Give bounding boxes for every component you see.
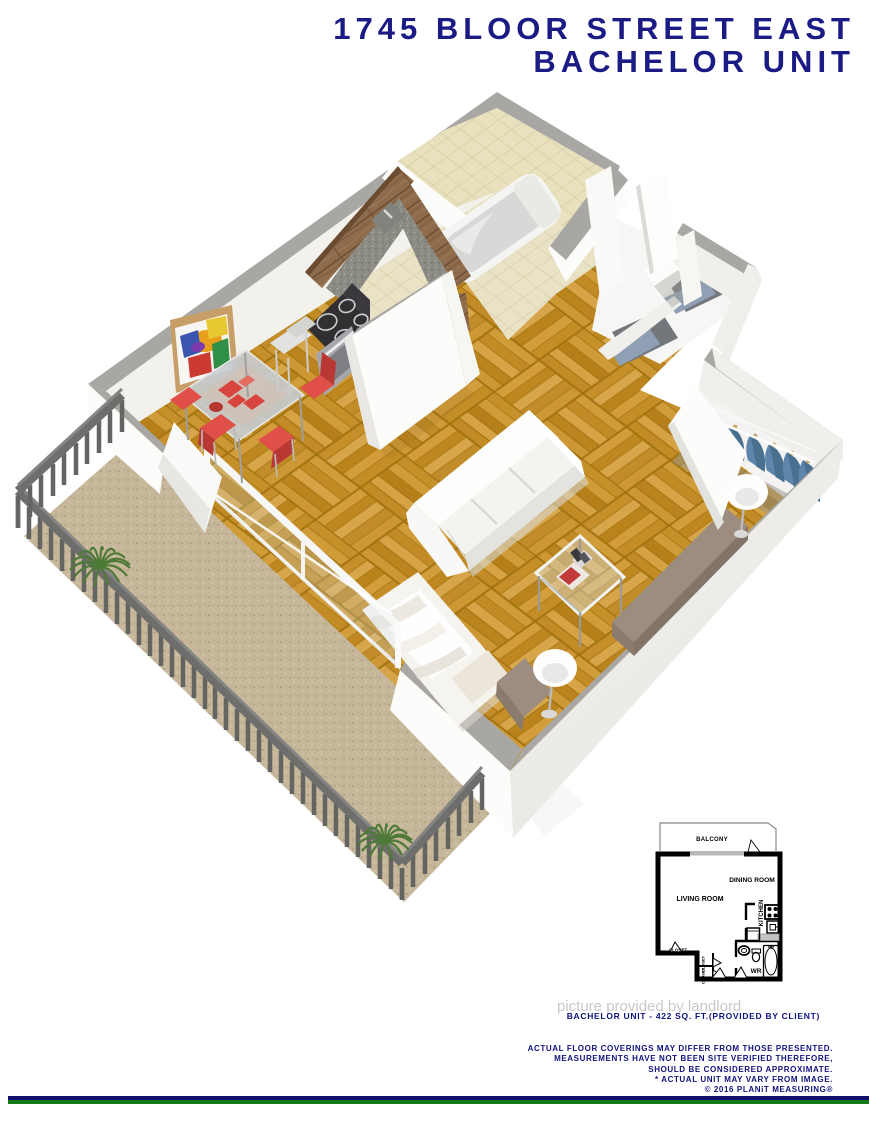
svg-text:LIVING ROOM: LIVING ROOM: [676, 896, 723, 903]
svg-text:CLOSET: CLOSET: [669, 948, 688, 953]
svg-text:CLOSET: CLOSET: [701, 967, 706, 984]
svg-text:BALCONY: BALCONY: [696, 837, 728, 843]
svg-text:KITCHEN: KITCHEN: [759, 900, 765, 927]
svg-text:WR: WR: [751, 968, 762, 975]
svg-text:DINING ROOM: DINING ROOM: [729, 877, 775, 884]
